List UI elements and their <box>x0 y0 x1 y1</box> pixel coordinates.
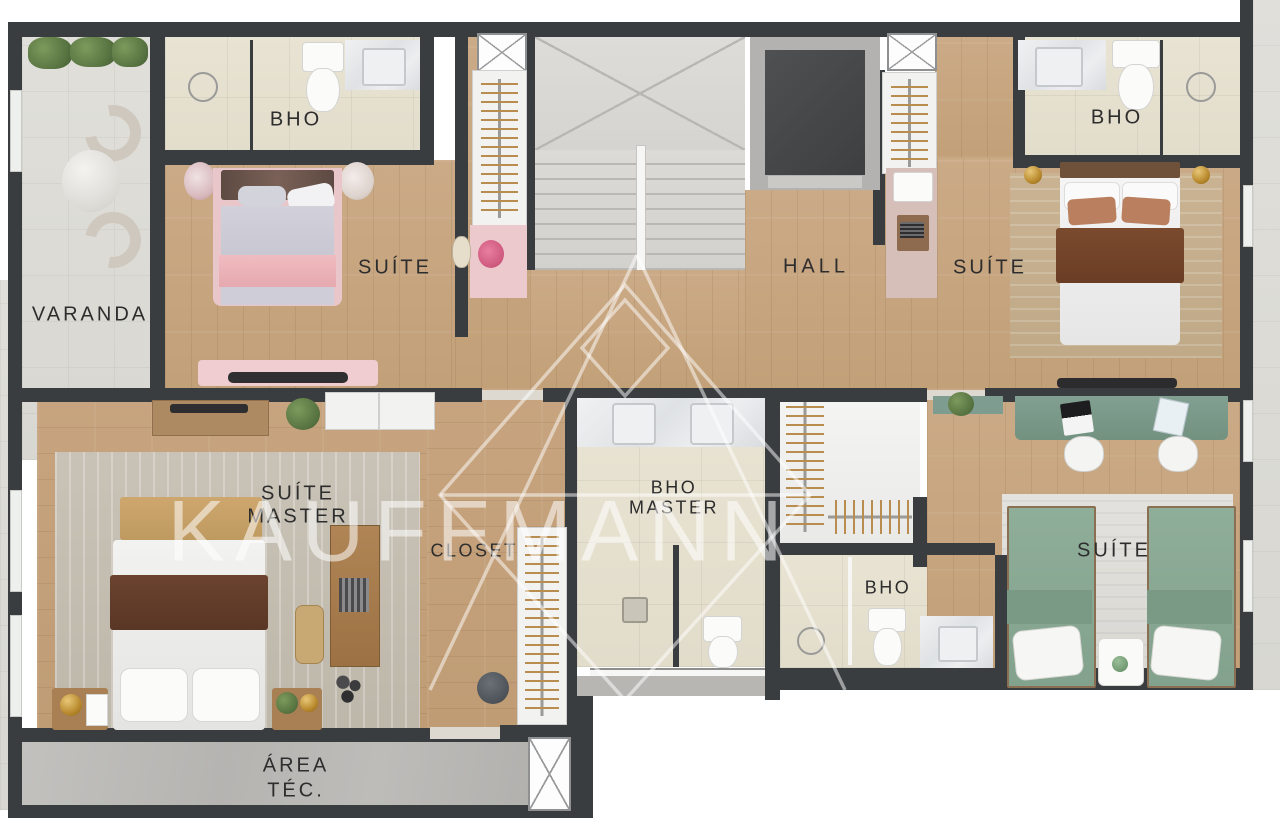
window-varanda <box>10 90 22 172</box>
closet-l-hangers-horizontal <box>828 500 912 534</box>
label-suite1-bho: BHO <box>270 109 322 132</box>
ledge-bho-master <box>577 676 765 696</box>
suite1-flower-stand-left <box>184 162 216 200</box>
wall-closet-l-right <box>913 497 927 567</box>
suite1-vanity-chair <box>478 240 504 268</box>
wall-bho1-divider <box>250 40 253 152</box>
suite2-wardrobe <box>882 72 937 174</box>
suite3-bed-right-band <box>1147 590 1232 624</box>
wall-bho1-right <box>420 37 434 165</box>
wall-top <box>8 22 1253 37</box>
bho-master-sink-left <box>612 403 656 445</box>
suite-master-pillow-left <box>120 668 188 722</box>
label-hall: HALL <box>783 256 849 279</box>
wall-mid-c <box>777 388 927 402</box>
wall-bottom-left <box>8 805 593 818</box>
wall-bathroom-small-right <box>995 555 1007 668</box>
suite1-vanity-stool <box>452 236 471 268</box>
suite1-tv <box>228 372 348 383</box>
stairs-flight-left <box>535 150 636 270</box>
wall-varanda-suite1 <box>150 37 165 390</box>
window-suite-master-2 <box>10 615 22 717</box>
shower-head-bathroom-small-icon <box>797 627 825 655</box>
suite1-flower-stand-right <box>340 162 374 200</box>
suite-master-shelf <box>325 392 435 430</box>
wall-bathroom-small-top <box>780 543 995 555</box>
suite-master-plant <box>286 398 320 430</box>
shaft-x-bottom <box>528 737 571 811</box>
bho-master-counter <box>577 398 765 447</box>
bathroom-small-toilet-bowl <box>873 628 902 666</box>
wall-suite1-right <box>455 37 468 337</box>
stairs-flight-right <box>644 150 745 270</box>
glass-divider-bathroom-small <box>848 557 852 665</box>
bho-master-shower-drain <box>622 597 648 623</box>
suite-master-bench <box>295 605 324 664</box>
suite3-bed-left-band <box>1007 590 1092 624</box>
suite1-wardrobe-hangers <box>481 79 518 218</box>
suite-master-bar-items <box>339 578 369 612</box>
suite3-plant <box>948 392 974 416</box>
suite2-entry-floor <box>935 37 1013 158</box>
shower-head-bho2-icon <box>1186 72 1216 102</box>
suite3-pillow-left <box>1012 625 1085 682</box>
suite2-pillow-terracotta-right <box>1121 196 1171 225</box>
shaft-x-top-left <box>477 33 527 72</box>
suite-master-lamp-right <box>300 694 318 712</box>
toilet-bowl-bho1 <box>306 68 340 112</box>
floor-plan-canvas: VARANDA BHO SUÍTE HALL SUÍTE BHO SUÍTE M… <box>0 0 1280 820</box>
window-suite2 <box>1243 185 1253 247</box>
shower-head-bho1-icon <box>188 72 218 102</box>
suite3-desk <box>1015 396 1228 440</box>
suite2-tv <box>1057 378 1177 388</box>
suite3-chair-right <box>1158 436 1198 472</box>
suite-master-record-player <box>86 694 108 726</box>
label-suite3: SUÍTE <box>1077 540 1151 563</box>
sink-basin-bho1 <box>362 48 406 86</box>
label-area-tecnica-line2: TÉC. <box>267 780 325 803</box>
suite2-headboard <box>1060 162 1180 178</box>
elevator-threshold <box>768 176 862 188</box>
suite2-wall-lamp-right <box>1192 166 1210 184</box>
suite2-blanket <box>1056 228 1184 283</box>
closet-pouf <box>477 672 509 704</box>
suite-master-shelf-divider <box>378 393 380 429</box>
suite3-nightstand-plant <box>1112 656 1128 672</box>
exterior-strip-left <box>0 280 8 810</box>
door-threshold-closet-bottom <box>430 727 500 739</box>
suite3-chair-left <box>1064 436 1104 472</box>
wall-bho2-divider <box>1160 40 1163 155</box>
toilet-bowl-bho2 <box>1118 64 1154 110</box>
suite2-wardrobe-hangers <box>891 79 928 167</box>
suite2-side-table <box>893 172 933 202</box>
bho-master-sink-right <box>690 403 734 445</box>
bho-master-toilet-bowl <box>708 636 738 668</box>
suite1-duvet-foot <box>221 287 334 305</box>
window-suite3-1 <box>1243 400 1253 462</box>
suite-master-blanket <box>110 575 268 630</box>
elevator-cab <box>765 50 865 175</box>
watermark-brand-text: KAUFFMANN <box>167 483 792 582</box>
door-threshold-closet <box>482 390 543 400</box>
varanda-plant-2 <box>70 37 116 67</box>
suite2-wall-lamp-left <box>1024 166 1042 184</box>
bathroom-small-sink-basin <box>938 626 978 662</box>
suite-master-floor-items <box>334 672 364 706</box>
label-suite1: SUÍTE <box>358 257 432 280</box>
shaft-x-top-right <box>887 33 937 71</box>
varanda-plant-3 <box>112 37 148 67</box>
stairs-landing <box>535 37 745 150</box>
exterior-strip-right <box>1253 0 1280 690</box>
label-bathroom-small: BHO <box>865 578 912 599</box>
suite-master-lamp-left <box>60 694 82 716</box>
suite3-notebook <box>1060 400 1094 436</box>
label-suite2: SUÍTE <box>953 257 1027 280</box>
varanda-round-table <box>62 150 120 212</box>
varanda-plant-1 <box>28 37 72 69</box>
suite-master-soundbar <box>170 404 248 413</box>
suite-master-plant-small <box>276 692 298 714</box>
suite1-wardrobe <box>472 70 527 227</box>
suite1-pillow-light <box>238 186 286 206</box>
suite2-laptop <box>900 222 924 238</box>
suite3-pillow-right <box>1150 625 1223 682</box>
window-suite3-2 <box>1243 540 1253 612</box>
suite2-pillow-terracotta-left <box>1067 196 1117 225</box>
suite-master-pillow-right <box>192 668 260 722</box>
glass-track-bho-master <box>590 668 765 676</box>
label-area-tecnica-line1: ÁREA <box>263 755 329 778</box>
sink-basin-bho2 <box>1035 47 1083 87</box>
label-suite2-bho: BHO <box>1091 107 1143 130</box>
stairs-center-rail <box>636 145 646 274</box>
suite1-satin-band <box>219 255 336 287</box>
label-varanda: VARANDA <box>32 304 148 327</box>
window-suite-master-1 <box>10 490 22 592</box>
